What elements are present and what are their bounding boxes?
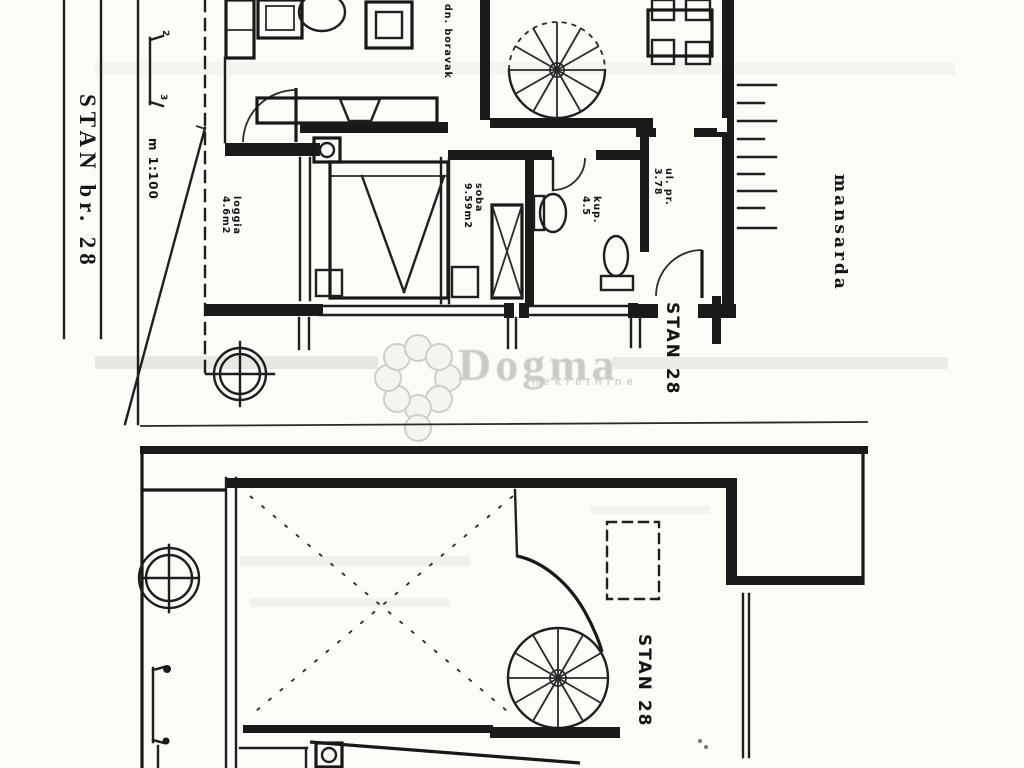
door-arc-bathroom — [553, 158, 585, 190]
room-label-kupaonica: kup. 4.5 — [580, 196, 602, 224]
spiral-staircase-top — [509, 22, 605, 118]
dimension-value-bottom: 3 — [158, 94, 168, 100]
chair — [652, 40, 674, 64]
dimension-marker-bottom — [153, 665, 171, 768]
door-arc-bedroom — [243, 88, 296, 142]
apartment-number-label: STAN br. 28 — [66, 52, 100, 312]
bedroom-east-wall — [441, 158, 449, 303]
room-name: loggia — [231, 196, 242, 235]
room-label-living: dn. boravak — [442, 4, 453, 79]
room-area: 4.6m2 — [220, 196, 231, 235]
hall-cabinet — [452, 267, 478, 297]
apartment-label-bottom-plan: STAN 28 — [634, 634, 654, 727]
side-table — [366, 2, 412, 48]
apartment-label-top-plan: STAN 28 — [662, 302, 682, 395]
room-area: 4.5 — [580, 196, 591, 224]
washbasin — [534, 194, 566, 232]
entrance-door-arc — [656, 250, 702, 296]
entrance-walls — [636, 128, 734, 298]
room-area: 3.78 — [652, 168, 663, 206]
tv — [340, 99, 380, 121]
terrace-edge-line — [140, 422, 868, 426]
window-loggia — [300, 158, 310, 300]
pouf — [299, 0, 345, 31]
roof-hatch-lines — [738, 85, 776, 228]
spiral-staircase-bottom — [508, 628, 608, 728]
room-name: kup. — [591, 196, 602, 224]
void-cross-lines — [250, 496, 513, 716]
room-area: 9.59m2 — [462, 183, 473, 229]
chair — [686, 42, 710, 64]
room-name: soba — [473, 183, 484, 229]
closet — [225, 0, 302, 142]
room-label-loggia: loggia 4.6m2 — [220, 196, 242, 235]
column-symbol — [316, 743, 342, 767]
scale-label: m 1:100 — [146, 138, 160, 200]
shaft-x-box — [492, 205, 522, 298]
scanned-floorplan-page: Dogma nekretnine — [0, 0, 1024, 768]
floor-label-mansarda: mansarda — [830, 174, 850, 292]
survey-point-symbol — [139, 545, 199, 612]
room-label-soba: soba 9.59m2 — [462, 183, 484, 229]
room-name: ul. pr. — [663, 168, 674, 206]
bed — [316, 162, 448, 298]
room-label-ulaz: ul. pr. 3.78 — [652, 168, 674, 206]
wall-stubs — [299, 318, 640, 349]
south-wall — [205, 303, 736, 318]
survey-point-symbol — [206, 342, 274, 406]
skylight-dashed-box — [607, 522, 659, 599]
bathroom-top-wall — [448, 150, 643, 160]
dimension-value-top: 2 — [160, 30, 170, 36]
dresser — [257, 98, 437, 123]
bottom-plan — [139, 446, 868, 768]
floorplan-linework — [0, 0, 1024, 768]
dining-table — [648, 0, 712, 64]
toilet — [601, 236, 633, 290]
